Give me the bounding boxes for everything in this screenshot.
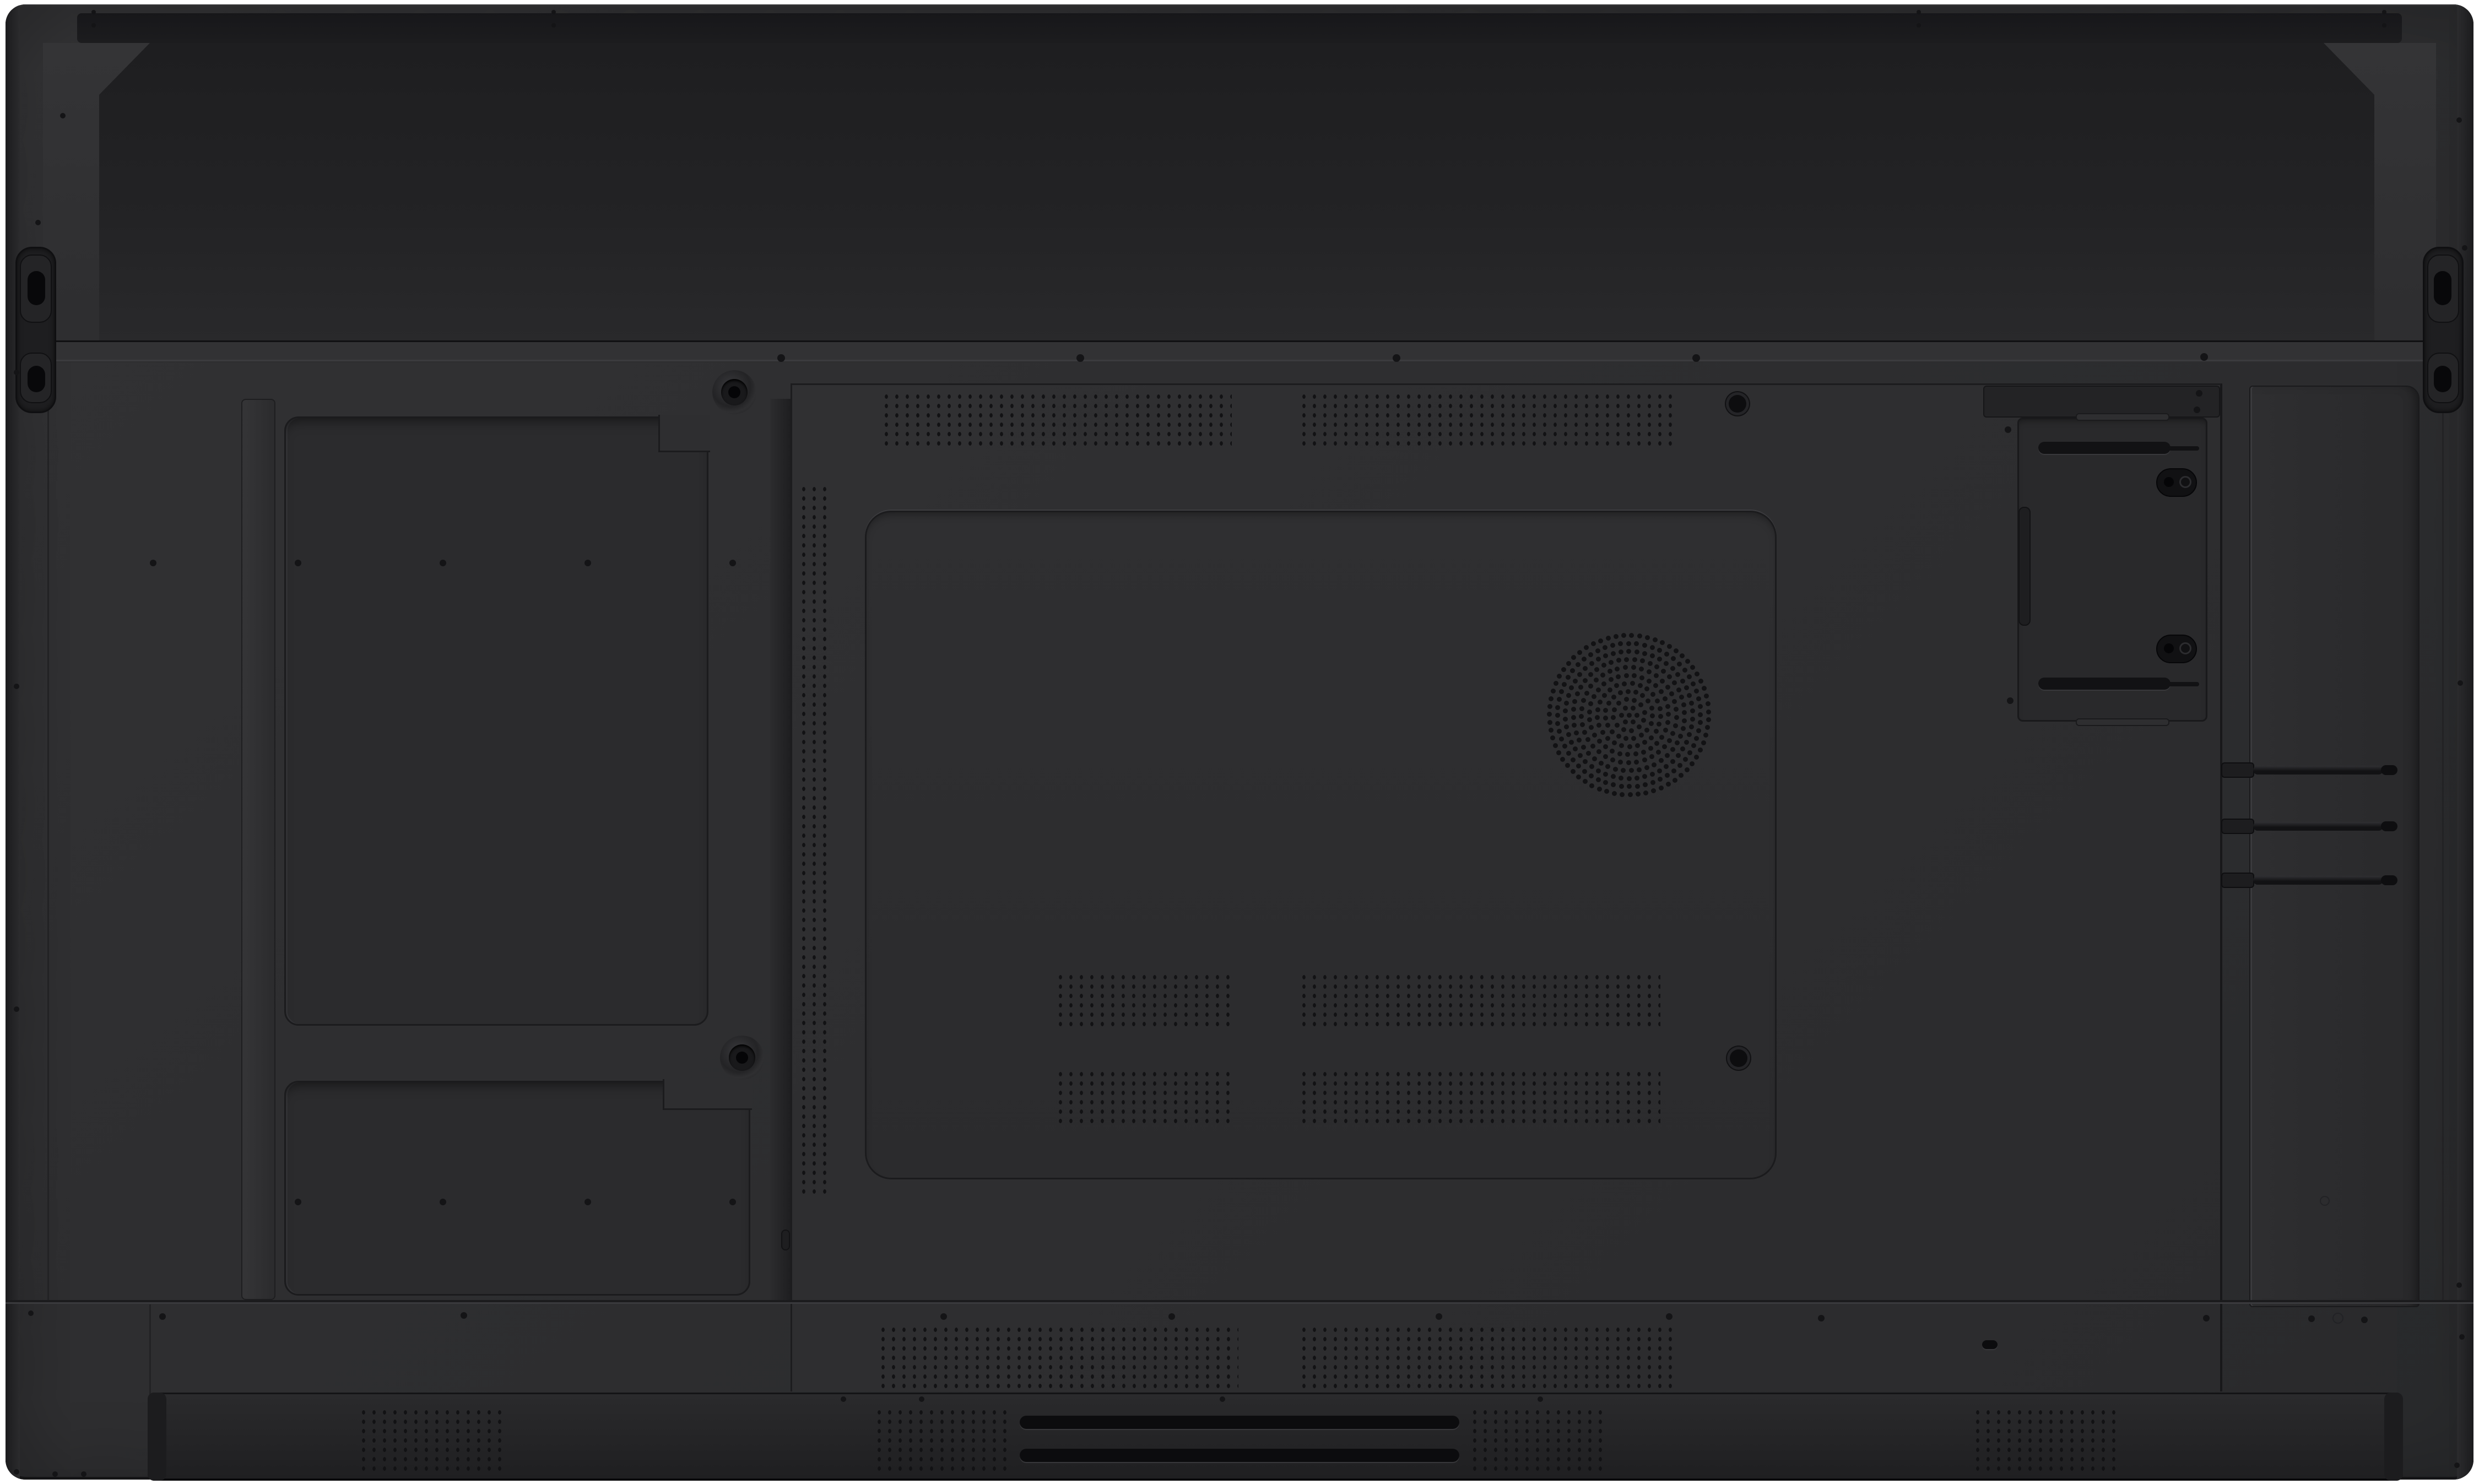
- central-panel-left-shadow: [770, 399, 791, 1300]
- speaker-perforation-dot: [1677, 763, 1682, 768]
- speaker-perforation-dot: [1547, 704, 1552, 709]
- speaker-perforation-dot: [1614, 634, 1619, 639]
- speaker-perforation-dot: [1681, 702, 1686, 707]
- screw-hole-1: [91, 23, 96, 28]
- speaker-perforation-dot: [1561, 667, 1566, 672]
- screw-hole-31: [1168, 1313, 1175, 1320]
- device-left-edge-face: [6, 4, 20, 1480]
- speaker-perforation-dot: [1694, 689, 1699, 694]
- screw-hole-37: [2361, 1317, 2368, 1323]
- speaker-perforation-dot: [1576, 763, 1581, 768]
- speaker-perforation-dot: [1569, 740, 1574, 745]
- screw-hole-11: [1692, 354, 1700, 362]
- speaker-perforation-dot: [1654, 741, 1659, 746]
- speaker-perforation-dot: [1674, 715, 1679, 720]
- speaker-perforation-dot: [1659, 735, 1664, 740]
- speaker-perforation-dot: [1623, 719, 1628, 724]
- speaker-perforation-dot: [1650, 645, 1655, 650]
- speaker-perforation-dot: [1660, 679, 1665, 684]
- speaker-perforation-dot: [1566, 751, 1571, 756]
- vent-grille-0: [881, 392, 1232, 447]
- service-ring-hole-bottom: [1730, 1049, 1747, 1067]
- speaker-perforation-dot: [1633, 690, 1638, 695]
- speaker-perforation-dot: [1598, 700, 1603, 705]
- speaker-perforation-dot: [1603, 754, 1608, 759]
- screw-hole-46: [729, 560, 736, 566]
- wifi-antenna-1-connector: [2221, 819, 2254, 834]
- speaker-perforation-dot: [1612, 791, 1617, 796]
- speaker-perforation-dot: [1639, 675, 1644, 680]
- ops-plate-tab-bottom: [2076, 718, 2169, 726]
- speaker-perforation-dot: [1571, 769, 1576, 774]
- speaker-perforation-dot: [1632, 657, 1637, 662]
- vent-grille-4: [1056, 1070, 1235, 1124]
- speaker-perforation-dot: [1589, 773, 1594, 778]
- speaker-perforation-dot: [1611, 651, 1616, 656]
- cable-door-small: [284, 1081, 750, 1296]
- door-notch-patch-small: [663, 1079, 752, 1110]
- screw-hole-3: [551, 23, 556, 28]
- speaker-perforation-dot: [1596, 777, 1601, 782]
- speaker-perforation-dot: [1621, 727, 1626, 732]
- speaker-perforation-dot: [1670, 666, 1675, 671]
- speaker-perforation-dot: [1603, 716, 1608, 721]
- speaker-perforation-dot: [1690, 708, 1695, 713]
- speaker-perforation-dot: [1683, 757, 1688, 762]
- screw-boss-hole-1: [736, 1052, 748, 1064]
- screw-hole-2: [551, 10, 556, 14]
- screw-boss-hole-0: [728, 386, 740, 398]
- speaker-perforation-dot: [1670, 759, 1675, 764]
- speaker-perforation-dot: [1665, 685, 1670, 690]
- speaker-perforation-dot: [1610, 643, 1615, 648]
- vent-grille-7: [1299, 1325, 1679, 1388]
- speaker-perforation-dot: [1557, 729, 1562, 734]
- speaker-perforation-dot: [1603, 653, 1608, 658]
- speaker-perforation-dot: [1670, 731, 1675, 736]
- speaker-perforation-dot: [1645, 635, 1650, 640]
- speaker-perforation-dot: [1667, 738, 1672, 743]
- screw-hole-17: [14, 1006, 19, 1012]
- speaker-perforation-dot: [1676, 753, 1681, 758]
- speaker-perforation-dot: [1631, 736, 1636, 741]
- screw-hole-54: [2194, 407, 2200, 413]
- ops-plate-slot-bottom-taper: [2168, 682, 2199, 686]
- speaker-perforation-dot: [1682, 668, 1687, 673]
- speaker-perforation-dot: [1549, 696, 1554, 701]
- speaker-perforation-dot: [1582, 769, 1587, 774]
- speaker-perforation-dot: [1566, 675, 1571, 680]
- speaker-perforation-dot: [1658, 714, 1663, 719]
- speaker-perforation-dot: [1622, 681, 1627, 686]
- wifi-antenna-0-connector: [2221, 762, 2254, 778]
- screw-hole-36: [2308, 1315, 2315, 1322]
- speaker-perforation-dot: [1554, 681, 1558, 686]
- screw-hole-9: [1076, 354, 1084, 362]
- speaker-perforation-dot: [1634, 649, 1639, 654]
- speaker-perforation-dot: [1628, 792, 1633, 797]
- speaker-perforation-dot: [1635, 743, 1640, 748]
- door-notch-patch-large: [658, 415, 710, 452]
- screw-hole-29: [461, 1312, 467, 1319]
- speaker-perforation-dot: [1679, 773, 1684, 778]
- speaker-perforation-dot: [1631, 665, 1636, 670]
- speaker-perforation-dot: [1682, 718, 1687, 723]
- handle-left-hole-bottom: [28, 366, 45, 392]
- speaker-perforation-dot: [1595, 707, 1600, 712]
- speaker-perforation-dot: [1605, 736, 1610, 741]
- speaker-perforation-dot: [1698, 704, 1703, 709]
- top-recess-face: [99, 43, 2374, 340]
- screw-hole-41: [1538, 1396, 1543, 1402]
- screw-hole-12: [2200, 353, 2208, 361]
- speaker-perforation-dot: [1626, 689, 1631, 694]
- speaker-perforation-dot: [1624, 657, 1629, 662]
- screw-hole-10: [1393, 354, 1400, 362]
- ops-mount-plate: [2017, 418, 2207, 722]
- speaker-perforation-dot: [1590, 744, 1595, 749]
- speaker-perforation-dot: [1596, 749, 1601, 754]
- speaker-perforation-dot: [1610, 749, 1615, 754]
- cable-door-large: [284, 416, 708, 1026]
- speaker-perforation-dot: [1674, 648, 1679, 653]
- speaker-perforation-dot: [1623, 706, 1628, 711]
- speaker-perforation-dot: [1564, 701, 1569, 706]
- speaker-perforation-dot: [1587, 709, 1592, 714]
- vent-grille-10: [874, 1408, 1012, 1475]
- screw-hole-7: [2382, 23, 2386, 28]
- speaker-perforation-dot: [1650, 653, 1655, 658]
- speaker-perforation-dot: [1694, 755, 1699, 760]
- speaker-perforation-dot: [1690, 717, 1695, 722]
- speaker-perforation-dot: [1619, 713, 1624, 718]
- speaker-perforation-dot: [1588, 652, 1593, 657]
- speaker-perforation-dot: [1624, 697, 1629, 702]
- speaker-perforation-dot: [1600, 730, 1605, 735]
- vent-grille-12: [1973, 1408, 2120, 1475]
- speaker-perforation-dot: [1619, 784, 1624, 789]
- speaker-perforation-dot: [1702, 686, 1707, 691]
- speaker-perforation-dot: [1654, 673, 1659, 678]
- speaker-perforation-dot: [1596, 687, 1601, 692]
- ops-oval-dot-top: [2164, 477, 2174, 487]
- speaker-perforation-dot: [1676, 687, 1681, 692]
- speaker-perforation-dot: [1665, 720, 1670, 725]
- speaker-perforation-dot: [1606, 701, 1611, 706]
- bottom-crease-highlight: [6, 1302, 2473, 1304]
- speaker-perforation-dot: [1642, 710, 1647, 715]
- wifi-antenna-0-shaft: [2253, 766, 2383, 775]
- speaker-perforation-dot: [1599, 761, 1604, 766]
- ops-oval-ring-top: [2179, 476, 2191, 488]
- product-photo-stage: [0, 0, 2479, 1484]
- top-recess-bottom-bevel: [43, 340, 2436, 361]
- speaker-perforation-dot: [1642, 651, 1647, 656]
- speaker-perforation-dot: [1574, 730, 1579, 735]
- screw-hole-52: [2007, 697, 2013, 704]
- screw-hole-6: [2382, 10, 2386, 14]
- top-cap: [77, 13, 2402, 43]
- apron-oval-hole: [1982, 1340, 1998, 1349]
- speaker-perforation-dot: [1571, 715, 1576, 720]
- screw-hole-27: [2454, 1463, 2460, 1468]
- speaker-perforation-dot: [1663, 728, 1668, 733]
- speaker-perforation-dot: [1647, 669, 1652, 674]
- speaker-perforation-dot: [1616, 734, 1621, 739]
- speaker-perforation-dot: [1547, 720, 1552, 725]
- speaker-perforation-dot: [1649, 721, 1654, 726]
- speaker-perforation-dot: [1659, 786, 1664, 790]
- speaker-perforation-dot: [1635, 784, 1640, 789]
- speaker-perforation-dot: [1704, 694, 1709, 698]
- speaker-perforation-dot: [1555, 705, 1560, 710]
- screw-hole-26: [2459, 1334, 2465, 1340]
- speaker-perforation-dot: [1641, 750, 1646, 755]
- screw-hole-43: [295, 560, 301, 566]
- vent-grille-3: [1299, 973, 1660, 1027]
- screw-hole-25: [2456, 1282, 2462, 1288]
- ops-plate-left-cutout: [2018, 507, 2031, 626]
- speaker-perforation-dot: [1581, 745, 1586, 750]
- speaker-perforation-dot: [1553, 743, 1558, 748]
- speaker-perforation-dot: [1619, 649, 1623, 654]
- speaker-perforation-dot: [1620, 792, 1625, 797]
- vent-grille-9: [359, 1408, 506, 1475]
- speaker-perforation-dot: [1627, 744, 1632, 749]
- ring-outline-right-panel: [2320, 1196, 2330, 1206]
- ops-plate-slot-top: [2038, 442, 2171, 454]
- speaker-perforation-dot: [1650, 780, 1655, 785]
- screw-hole-20: [52, 1471, 58, 1477]
- bottom-bar-endcap-right: [2384, 1393, 2403, 1481]
- service-ring-hole-top: [1729, 395, 1746, 413]
- speaker-perforation-dot: [1663, 696, 1668, 701]
- vent-grille-1: [1299, 392, 1679, 447]
- vent-grille-5: [1299, 1070, 1660, 1124]
- speaker-perforation-dot: [1654, 729, 1659, 734]
- speaker-perforation-dot: [1649, 706, 1654, 711]
- left-margin-groove: [47, 386, 49, 1300]
- speaker-perforation-dot: [1680, 653, 1685, 658]
- wifi-antenna-2-shaft: [2253, 876, 2383, 885]
- speaker-perforation-dot: [1566, 661, 1571, 666]
- speaker-perforation-dot: [1559, 736, 1564, 741]
- screw-hole-47: [295, 1199, 301, 1205]
- speaker-perforation-dot: [1617, 751, 1622, 756]
- screw-hole-5: [1917, 23, 1921, 28]
- speaker-perforation-dot: [1642, 757, 1647, 762]
- speaker-perforation-dot: [1659, 758, 1664, 763]
- right-side-panel: [2249, 386, 2420, 1307]
- speaker-perforation-dot: [1589, 661, 1594, 666]
- speaker-perforation-dot: [1611, 695, 1616, 700]
- speaker-perforation-dot: [1582, 730, 1587, 735]
- speaker-perforation-dot: [1649, 735, 1654, 740]
- speaker-perforation-dot: [1673, 723, 1678, 728]
- screw-hole-40: [1220, 1396, 1225, 1402]
- speaker-perforation-dot: [1586, 751, 1591, 756]
- speaker-perforation-dot: [1678, 734, 1683, 739]
- speaker-perforation-dot: [1603, 744, 1608, 749]
- ops-plate-tab-top: [2076, 413, 2169, 421]
- speaker-perforation-dot: [1637, 633, 1642, 638]
- bottom-bar-slot-top: [1020, 1416, 1459, 1429]
- handle-right-hole-top: [2434, 271, 2451, 305]
- screw-hole-21: [81, 1471, 86, 1477]
- screw-hole-39: [919, 1396, 924, 1402]
- speaker-perforation-dot: [1596, 768, 1601, 773]
- speaker-perforation-dot: [1666, 782, 1671, 787]
- speaker-perforation-dot: [1665, 753, 1670, 758]
- wifi-antenna-1-shaft: [2253, 822, 2383, 831]
- speaker-perforation-dot: [1630, 681, 1635, 686]
- speaker-perforation-dot: [1648, 746, 1653, 751]
- speaker-perforation-dot: [1603, 645, 1607, 650]
- speaker-perforation-dot: [1650, 772, 1655, 777]
- speaker-perforation-dot: [1592, 733, 1597, 738]
- left-region-divider-rib: [241, 399, 275, 1300]
- speaker-perforation-dot: [1613, 767, 1618, 772]
- bottom-bar-slot-bottom: [1020, 1449, 1459, 1462]
- device-right-edge-face: [2457, 4, 2473, 1480]
- speaker-perforation-dot: [1615, 723, 1620, 728]
- handle-left-hole-top: [28, 271, 45, 305]
- panel-edge-slot: [781, 1230, 790, 1250]
- wifi-antenna-1-tip: [2381, 821, 2397, 831]
- screw-hole-13: [60, 113, 66, 118]
- screw-hole-8: [777, 354, 785, 362]
- screw-hole-32: [1436, 1313, 1442, 1320]
- screw-hole-33: [1666, 1313, 1672, 1320]
- handle-right-hole-bottom: [2434, 366, 2451, 392]
- speaker-perforation-dot: [1597, 787, 1602, 792]
- speaker-perforation-dot: [1616, 701, 1621, 706]
- speaker-perforation-dot: [1687, 750, 1692, 755]
- speaker-perforation-dot: [1690, 761, 1695, 766]
- wifi-antenna-2-connector: [2221, 873, 2254, 888]
- screw-hole-38: [841, 1396, 846, 1402]
- speaker-perforation-dot: [1637, 767, 1642, 772]
- speaker-perforation-dot: [1687, 674, 1692, 679]
- screw-hole-51: [2005, 426, 2011, 433]
- speaker-perforation-dot: [1595, 648, 1600, 653]
- speaker-perforation-dot: [1626, 641, 1631, 646]
- screw-hole-4: [1917, 10, 1921, 14]
- speaker-perforation-dot: [1684, 740, 1689, 745]
- speaker-perforation-dot: [1578, 753, 1583, 758]
- speaker-perforation-dot: [1589, 764, 1594, 769]
- vent-grille-8: [799, 485, 827, 1194]
- screw-hole-24: [2458, 680, 2463, 686]
- speaker-perforation-dot: [1639, 667, 1644, 671]
- speaker-perforation-dot: [1566, 732, 1571, 737]
- screw-hole-34: [1818, 1315, 1825, 1321]
- speaker-perforation-dot: [1689, 724, 1694, 729]
- speaker-perforation-dot: [1624, 673, 1629, 678]
- speaker-perforation-dot: [1706, 709, 1711, 714]
- screw-hole-50: [729, 1199, 736, 1205]
- ops-oval-dot-bottom: [2164, 643, 2174, 653]
- speaker-perforation-dot: [1667, 644, 1672, 649]
- speaker-perforation-dot: [1685, 767, 1690, 772]
- speaker-perforation-dot: [1627, 776, 1632, 781]
- speaker-perforation-dot: [1632, 698, 1637, 703]
- screw-hole-22: [2456, 117, 2462, 123]
- speaker-perforation-dot: [1612, 707, 1617, 712]
- speaker-perforation-dot: [1589, 783, 1594, 788]
- speaker-perforation-dot: [1677, 662, 1682, 667]
- screw-hole-48: [440, 1199, 446, 1205]
- vent-grille-11: [1470, 1408, 1602, 1475]
- speaker-perforation-dot: [1606, 636, 1611, 641]
- speaker-perforation-dot: [1618, 760, 1623, 765]
- speaker-perforation-dot: [1557, 697, 1562, 702]
- speaker-perforation-dot: [1549, 728, 1554, 733]
- speaker-perforation-dot: [1706, 701, 1711, 706]
- speaker-perforation-dot: [1631, 719, 1636, 724]
- speaker-perforation-dot: [1648, 661, 1653, 666]
- speaker-perforation-dot: [1638, 683, 1643, 688]
- wifi-antenna-0-tip: [2381, 765, 2397, 775]
- screw-hole-0: [91, 10, 96, 14]
- vent-grille-6: [878, 1325, 1238, 1388]
- speaker-perforation-dot: [1670, 747, 1675, 752]
- speaker-perforation-dot: [1689, 701, 1694, 706]
- speaker-perforation-dot: [1658, 706, 1663, 711]
- speaker-perforation-dot: [1657, 768, 1662, 773]
- speaker-perforation-dot: [1626, 760, 1631, 765]
- speaker-perforation-dot: [1592, 756, 1597, 761]
- speaker-perforation-dot: [1609, 660, 1614, 665]
- speaker-perforation-dot: [1691, 681, 1696, 686]
- screw-hole-23: [2462, 245, 2467, 251]
- screw-hole-49: [584, 1199, 591, 1205]
- screw-hole-18: [28, 1310, 34, 1316]
- screw-hole-28: [159, 1313, 166, 1320]
- ops-plate-slot-top-taper: [2168, 446, 2199, 451]
- screw-hole-30: [940, 1313, 947, 1320]
- screw-hole-35: [2203, 1315, 2210, 1321]
- speaker-perforation-dot: [1559, 689, 1564, 694]
- speaker-perforation-dot: [1562, 682, 1567, 687]
- speaker-perforation-dot: [1672, 778, 1677, 783]
- speaker-perforation-dot: [1706, 717, 1711, 722]
- speaker-perforation-dot: [1556, 750, 1561, 755]
- speaker-perforation-dot: [1629, 728, 1634, 733]
- speaker-perforation-dot: [1584, 691, 1589, 696]
- speaker-perforation-dot: [1563, 717, 1568, 722]
- screw-hole-44: [440, 560, 446, 566]
- speaker-perforation-dot: [1634, 713, 1639, 718]
- speaker-perforation-dot: [1701, 740, 1706, 745]
- screw-hole-16: [14, 684, 19, 689]
- vent-grille-2: [1056, 973, 1235, 1027]
- ops-oval-ring-bottom: [2179, 642, 2191, 654]
- speaker-perforation-dot: [1631, 706, 1636, 711]
- screw-hole-15: [14, 370, 19, 375]
- speaker-perforation-dot: [1665, 704, 1670, 709]
- right-margin-groove: [2442, 386, 2444, 1300]
- speaker-perforation-dot: [1696, 696, 1701, 701]
- speaker-perforation-dot: [1671, 768, 1676, 773]
- ring-outline-apron: [2332, 1313, 2343, 1324]
- wifi-antenna-2-tip: [2381, 875, 2397, 885]
- speaker-perforation-dot: [1591, 641, 1596, 646]
- screw-hole-42: [150, 560, 156, 566]
- speaker-perforation-dot: [1551, 689, 1556, 694]
- speaker-perforation-dot: [1603, 772, 1608, 777]
- speaker-perforation-dot: [1555, 713, 1560, 718]
